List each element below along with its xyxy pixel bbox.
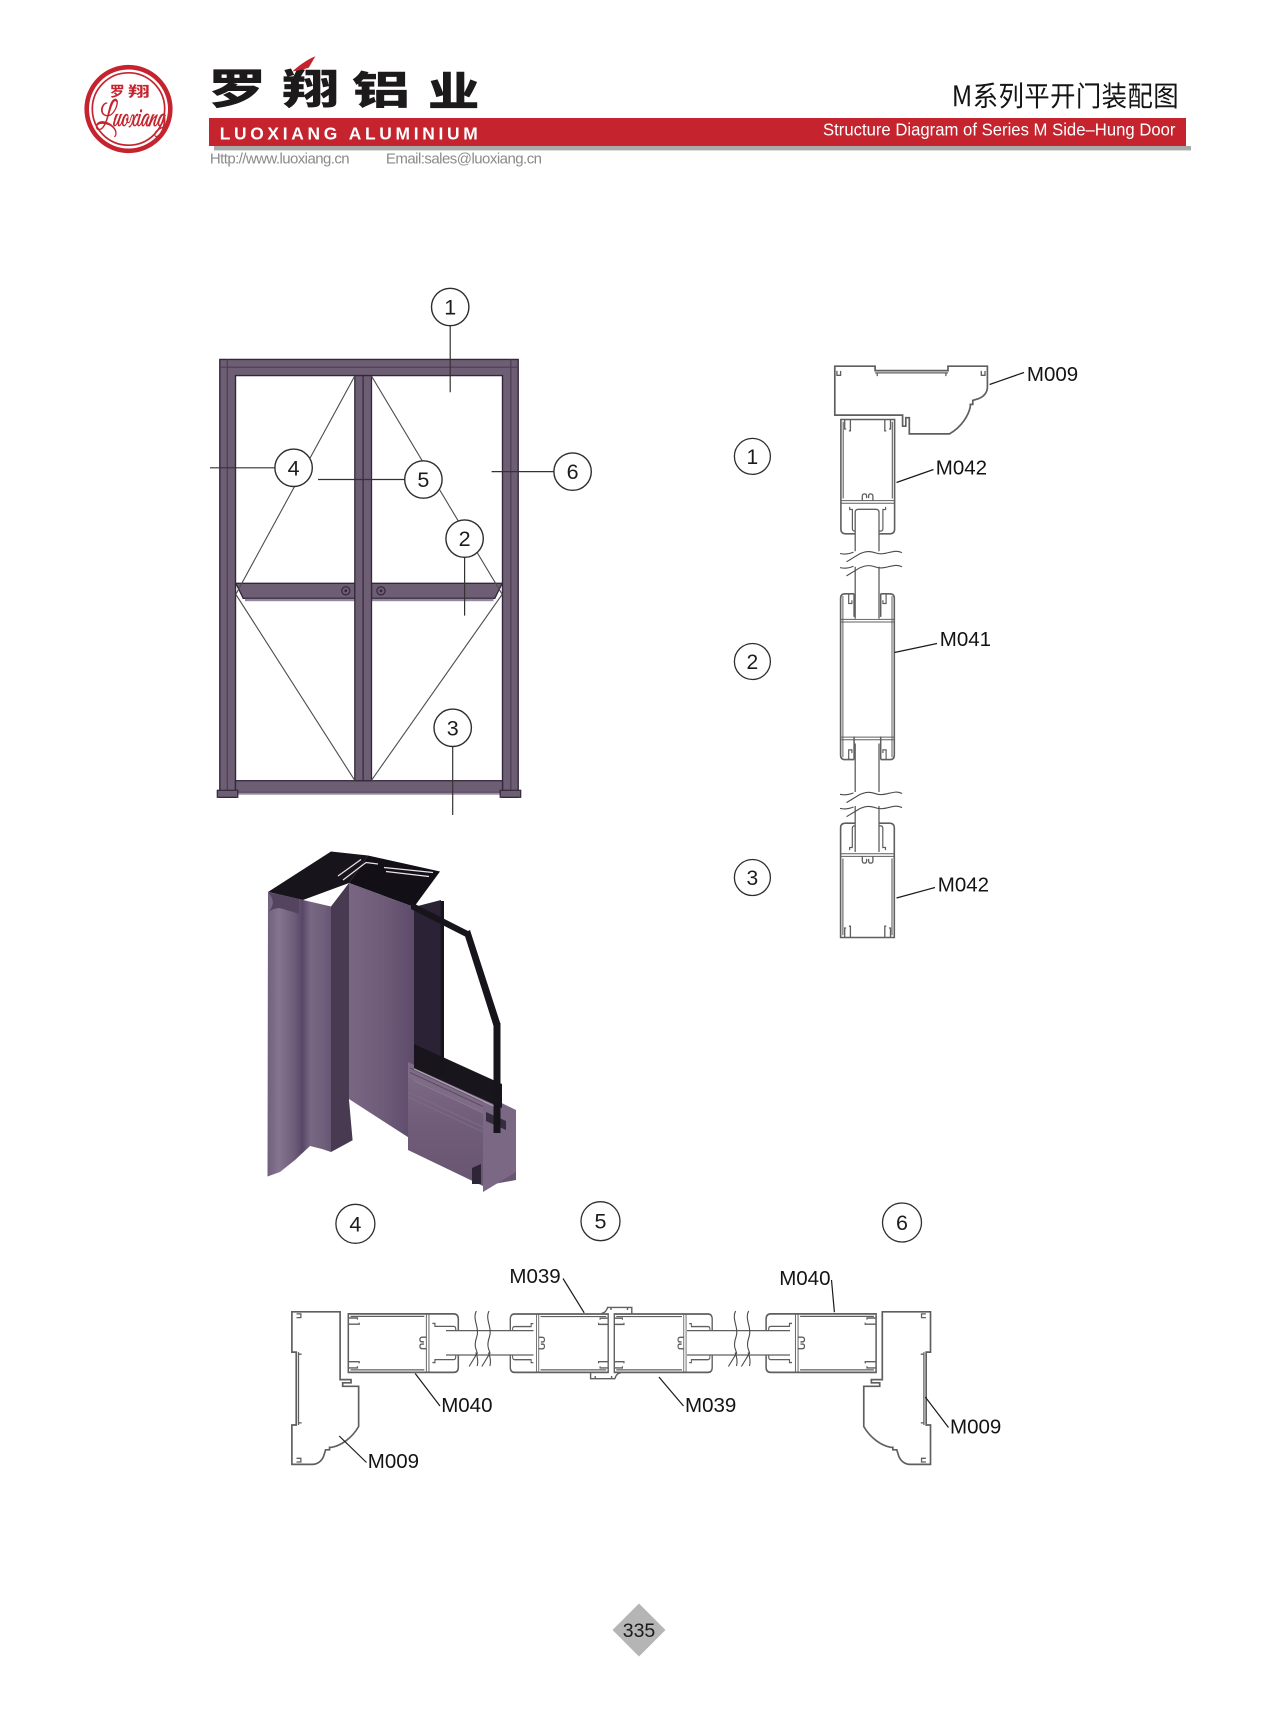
svg-text:6: 6: [896, 1211, 908, 1235]
svg-text:M009: M009: [368, 1450, 419, 1473]
svg-text:Email:sales@luoxiang.cn: Email:sales@luoxiang.cn: [386, 151, 542, 168]
svg-text:6: 6: [567, 460, 579, 484]
svg-text:M009: M009: [950, 1416, 1001, 1439]
svg-text:M039: M039: [509, 1265, 560, 1288]
svg-text:3: 3: [447, 716, 459, 740]
svg-text:1: 1: [444, 296, 456, 320]
svg-text:5: 5: [417, 468, 429, 492]
svg-text:M042: M042: [936, 457, 987, 480]
svg-text:LUOXIANG ALUMINIUM: LUOXIANG ALUMINIUM: [220, 124, 478, 144]
svg-text:2: 2: [459, 527, 471, 551]
svg-text:Http://www.luoxiang.cn: Http://www.luoxiang.cn: [210, 151, 350, 168]
svg-text:M041: M041: [940, 628, 991, 651]
svg-text:3: 3: [747, 867, 759, 890]
svg-text:2: 2: [747, 651, 759, 674]
svg-text:4: 4: [349, 1212, 361, 1236]
svg-text:M009: M009: [1027, 363, 1078, 386]
svg-text:M040: M040: [441, 1394, 492, 1417]
svg-text:M040: M040: [779, 1267, 830, 1290]
svg-text:M042: M042: [938, 874, 989, 897]
svg-text:M039: M039: [685, 1394, 736, 1417]
svg-text:Structure Diagram of Series M: Structure Diagram of Series M Side–Hung …: [823, 120, 1176, 140]
svg-text:1: 1: [747, 446, 759, 469]
svg-text:4: 4: [288, 456, 300, 480]
svg-text:335: 335: [623, 1620, 656, 1642]
svg-text:5: 5: [595, 1210, 607, 1234]
